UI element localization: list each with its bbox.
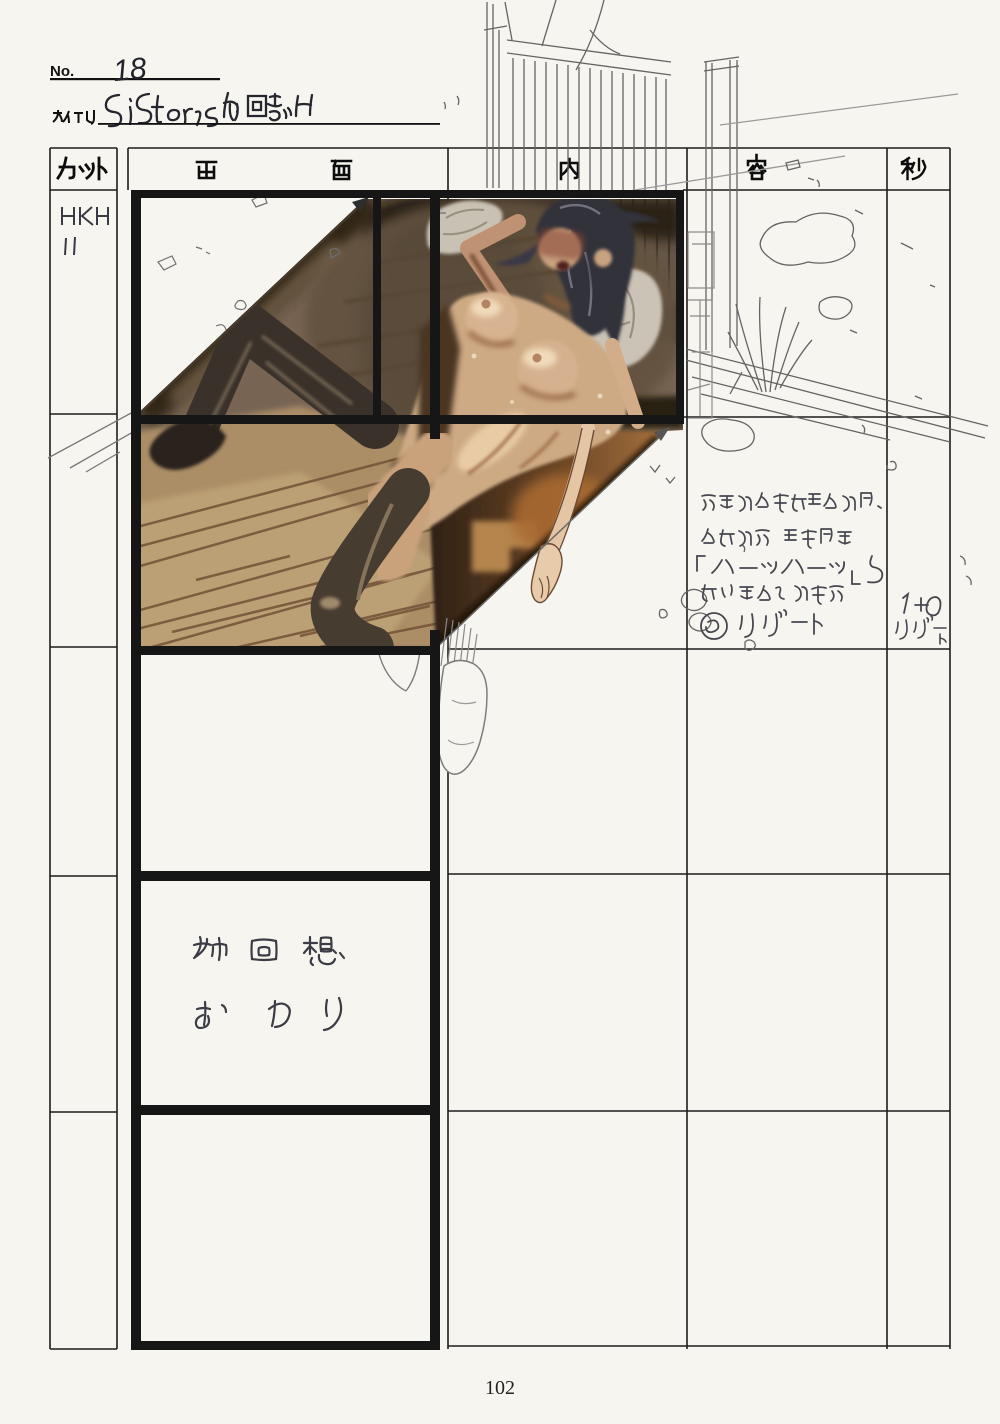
- svg-text:18: 18: [111, 52, 148, 88]
- svg-text:102: 102: [485, 1377, 515, 1399]
- svg-text:No.: No.: [50, 63, 74, 80]
